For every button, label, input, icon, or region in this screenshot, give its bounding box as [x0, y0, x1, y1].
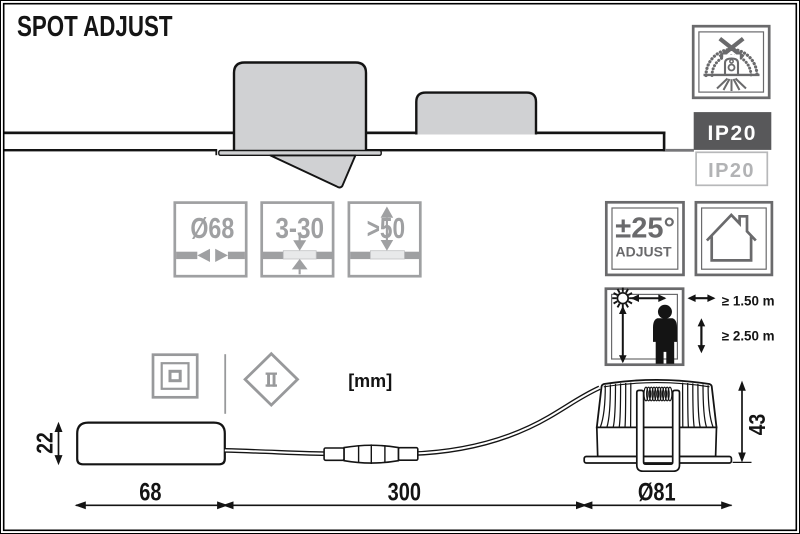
svg-text:22: 22 [32, 432, 58, 453]
svg-text:SPOT ADJUST: SPOT ADJUST [17, 11, 173, 42]
svg-text:IP20: IP20 [707, 122, 757, 145]
svg-text:300: 300 [388, 479, 421, 507]
svg-text:68: 68 [139, 479, 161, 507]
svg-text:≥ 1.50 m: ≥ 1.50 m [722, 294, 775, 309]
svg-text:[mm]: [mm] [348, 371, 392, 391]
svg-text:Ø68: Ø68 [190, 212, 234, 245]
svg-text:IP20: IP20 [708, 160, 755, 182]
svg-text:ADJUST: ADJUST [615, 244, 671, 260]
svg-text:43: 43 [744, 414, 770, 435]
svg-text:≥ 2.50 m: ≥ 2.50 m [722, 329, 775, 344]
svg-text:±25°: ±25° [615, 213, 675, 245]
svg-text:3-30: 3-30 [275, 212, 324, 244]
svg-text:>50: >50 [367, 211, 405, 244]
svg-text:Ø81: Ø81 [638, 479, 676, 507]
